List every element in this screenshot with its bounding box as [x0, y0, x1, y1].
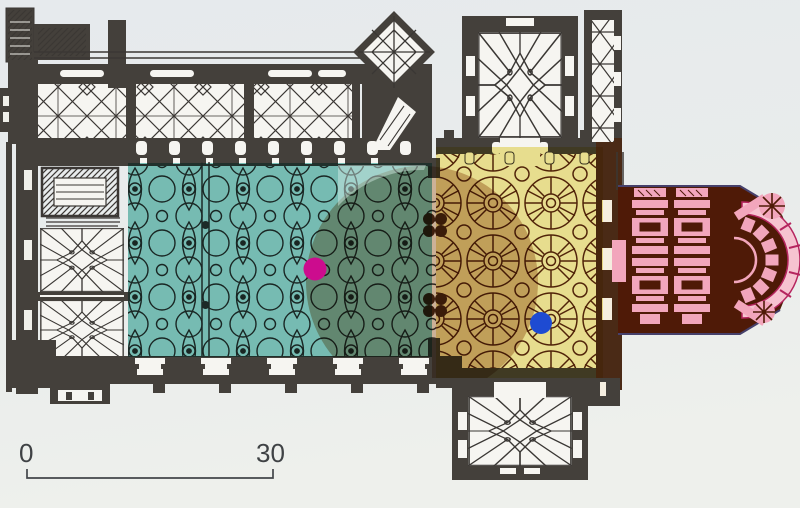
- blue-marker: [530, 312, 552, 334]
- nw-annex-stairs: [8, 10, 32, 60]
- apse: [612, 186, 800, 334]
- scale-label-start: 0: [19, 438, 33, 468]
- floor-plan-svg: 0 30: [0, 0, 800, 508]
- scale-label-end: 30: [256, 438, 285, 468]
- scanned-figure-page: 0 30: [0, 0, 800, 508]
- north-gallery-floor: [34, 80, 360, 140]
- west-block: [34, 168, 130, 360]
- magenta-marker: [304, 258, 327, 281]
